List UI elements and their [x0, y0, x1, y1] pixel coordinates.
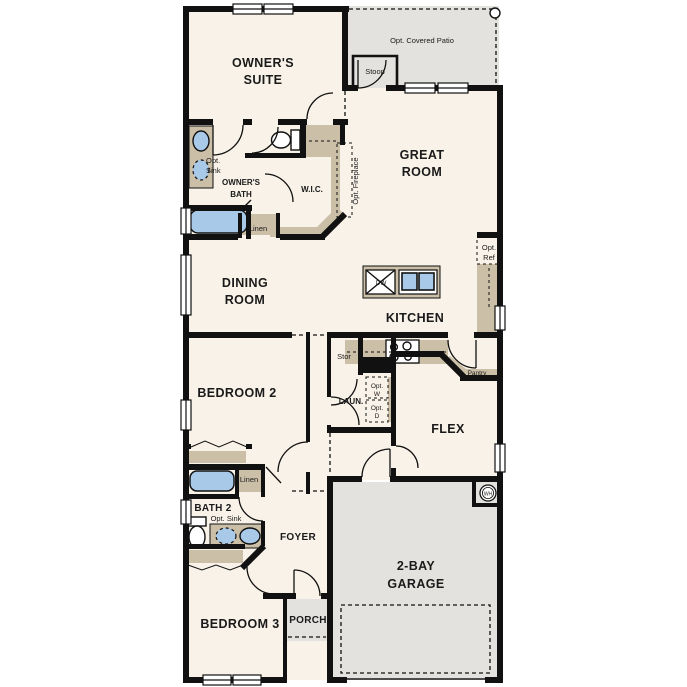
island-sink	[399, 270, 437, 294]
owners-bath-sink	[193, 131, 209, 151]
patio-post	[490, 8, 500, 18]
window	[405, 83, 435, 93]
wall	[183, 494, 239, 499]
label-owners-suite: OWNER'S	[232, 56, 294, 70]
wall	[342, 6, 348, 91]
wall	[261, 464, 265, 497]
wall	[340, 119, 345, 145]
window	[233, 675, 261, 685]
wall	[183, 444, 191, 449]
wall	[183, 234, 238, 240]
label-opt-ref: Opt.	[482, 243, 496, 252]
bedroom2-closet-shelf	[188, 451, 246, 463]
wall	[327, 332, 448, 338]
wall	[391, 351, 444, 357]
window	[181, 208, 191, 234]
wall	[238, 213, 242, 238]
kitchen-counter-right	[477, 264, 497, 332]
label-stor: Stor	[337, 352, 351, 361]
label-linen-lower: Linen	[240, 475, 258, 484]
wall	[333, 677, 347, 683]
wall	[485, 677, 503, 683]
label-garage-2: GARAGE	[387, 577, 444, 591]
wall	[333, 476, 362, 482]
window	[264, 4, 293, 14]
window	[438, 83, 468, 93]
wall	[327, 476, 333, 683]
label-great-room: GREAT	[400, 148, 445, 162]
bath2-tub	[190, 471, 234, 491]
label-great-room-2: ROOM	[402, 165, 443, 179]
label-porch: PORCH	[289, 615, 327, 626]
label-pantry: Pantry	[468, 370, 488, 377]
wall	[276, 213, 280, 238]
wall	[327, 332, 331, 397]
window	[181, 400, 191, 430]
bath2-opt-sink	[216, 528, 236, 544]
label-stoop: Stoop	[365, 67, 385, 76]
window	[181, 255, 191, 315]
label-laun: LAUN.	[339, 397, 363, 406]
label-opt-sink-owners: Opt.	[206, 156, 220, 165]
wall	[390, 476, 497, 482]
label-opt-sink-bath2: Opt. Sink	[211, 514, 242, 523]
label-dining-2: ROOM	[225, 293, 266, 307]
wall	[183, 6, 189, 683]
wall	[183, 464, 265, 470]
label-owners-bath: OWNER'S	[222, 178, 261, 187]
label-wh: WH	[484, 492, 493, 498]
label-flex: FLEX	[431, 422, 465, 436]
label-owners-bath-2: BATH	[230, 190, 252, 199]
wall	[246, 205, 251, 239]
label-opt-ref-2: Ref	[483, 253, 496, 262]
wall	[358, 357, 396, 373]
label-dw: DW	[376, 280, 388, 287]
wall	[280, 234, 325, 240]
wall	[306, 472, 310, 494]
wall	[183, 332, 292, 338]
wall	[306, 332, 310, 442]
label-opt-w-2: W	[374, 391, 381, 398]
label-bath2: BATH 2	[194, 503, 231, 514]
wall	[243, 119, 252, 125]
label-kitchen: KITCHEN	[386, 311, 444, 325]
wall	[183, 119, 213, 125]
wall	[472, 503, 503, 507]
bath2-sink	[240, 528, 260, 544]
owners-toilet-tank	[291, 130, 300, 150]
wic-shelf-right	[331, 157, 340, 215]
wall	[261, 521, 265, 546]
label-garage: 2-BAY	[397, 559, 436, 573]
wall	[391, 357, 396, 446]
wall	[300, 119, 306, 158]
label-bedroom2: BEDROOM 2	[197, 386, 276, 400]
floor-plan: OWNER'S SUITE Opt. Covered Patio Stoop G…	[0, 0, 687, 687]
label-wic: W.I.C.	[301, 185, 323, 194]
window	[233, 4, 262, 14]
wall	[235, 464, 239, 494]
wall	[342, 85, 358, 91]
wall	[474, 332, 503, 338]
wall	[477, 232, 503, 238]
floor-plan-svg: OWNER'S SUITE Opt. Covered Patio Stoop G…	[0, 0, 687, 687]
bedroom3-closet-shelf	[187, 550, 243, 563]
wall	[327, 427, 396, 433]
wall	[183, 544, 245, 549]
wall	[245, 153, 306, 158]
wall	[283, 599, 287, 683]
label-dining: DINING	[222, 276, 268, 290]
label-opt-d: Opt.	[371, 405, 383, 412]
label-bedroom3: BEDROOM 3	[200, 617, 279, 631]
window	[495, 306, 505, 330]
window	[181, 500, 191, 524]
window	[203, 675, 231, 685]
label-opt-fireplace: Opt. Fireplace	[351, 157, 360, 204]
label-opt-sink-owners-2: Sink	[206, 166, 221, 175]
label-linen-upper: Linen	[249, 224, 267, 233]
label-opt-covered-patio: Opt. Covered Patio	[390, 36, 454, 45]
window	[495, 444, 505, 472]
wall	[497, 85, 503, 683]
label-opt-w: Opt.	[371, 383, 383, 390]
label-owners-suite-2: SUITE	[244, 73, 283, 87]
label-foyer: FOYER	[280, 532, 316, 543]
label-opt-d-2: D	[375, 413, 380, 420]
